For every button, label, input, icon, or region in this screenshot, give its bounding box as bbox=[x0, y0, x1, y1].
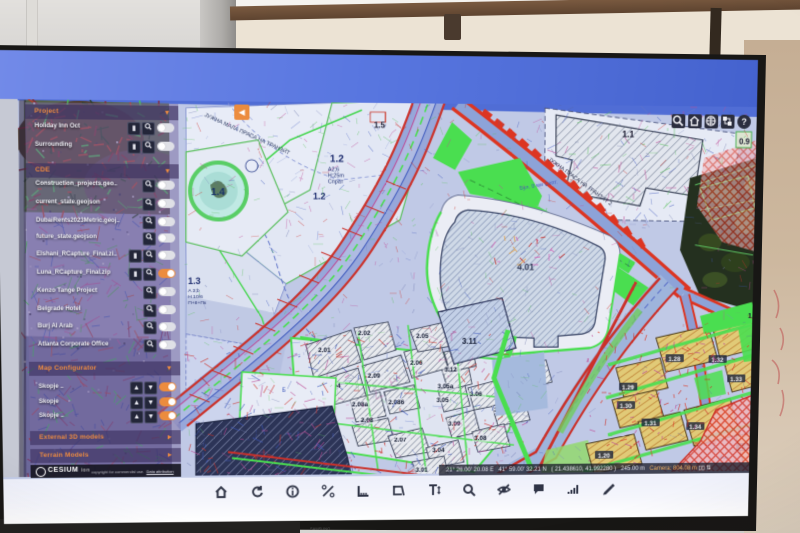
svg-text:2.02: 2.02 bbox=[358, 330, 371, 337]
svg-text:2.086: 2.086 bbox=[388, 399, 404, 406]
svg-text:2.09: 2.09 bbox=[368, 373, 381, 380]
svg-text:1.3: 1.3 bbox=[188, 275, 201, 286]
svg-text:2.05: 2.05 bbox=[416, 333, 429, 340]
svg-text:1.1: 1.1 bbox=[622, 128, 634, 139]
svg-text:3.01: 3.01 bbox=[416, 467, 429, 474]
svg-text:SAMSUNG: SAMSUNG bbox=[310, 526, 330, 531]
svg-text:1.28: 1.28 bbox=[668, 356, 680, 363]
svg-text:3.12: 3.12 bbox=[444, 367, 457, 374]
svg-text:1.5: 1.5 bbox=[374, 120, 385, 130]
svg-text:3.11: 3.11 bbox=[462, 336, 477, 345]
svg-text:1.30: 1.30 bbox=[620, 403, 632, 410]
svg-text:3.05: 3.05 bbox=[436, 397, 449, 404]
svg-text:2.07: 2.07 bbox=[394, 437, 407, 444]
svg-text:3.05a: 3.05a bbox=[438, 384, 454, 391]
svg-text:H:25m: H:25m bbox=[328, 173, 344, 179]
svg-text:3.09: 3.09 bbox=[448, 421, 461, 428]
svg-text:3.06: 3.06 bbox=[470, 391, 483, 398]
svg-text:4.01: 4.01 bbox=[517, 261, 534, 271]
svg-text:1.4: 1.4 bbox=[211, 187, 225, 198]
svg-text:Б: Б bbox=[282, 387, 286, 394]
svg-text:0.9: 0.9 bbox=[739, 136, 750, 146]
svg-text:1.33: 1.33 bbox=[730, 377, 742, 384]
svg-text:1.2: 1.2 bbox=[330, 154, 344, 165]
svg-text:A 3;b: A 3;b bbox=[188, 288, 200, 294]
svg-text:1.34: 1.34 bbox=[689, 424, 701, 431]
svg-text:1.2: 1.2 bbox=[313, 190, 326, 201]
svg-text:1.29: 1.29 bbox=[622, 385, 634, 392]
svg-text:Спрат: Спрат bbox=[328, 179, 344, 185]
svg-text:1.31: 1.31 bbox=[644, 421, 656, 428]
svg-text:2.08a: 2.08a bbox=[352, 402, 368, 409]
svg-text:H 10/6: H 10/6 bbox=[188, 294, 203, 300]
